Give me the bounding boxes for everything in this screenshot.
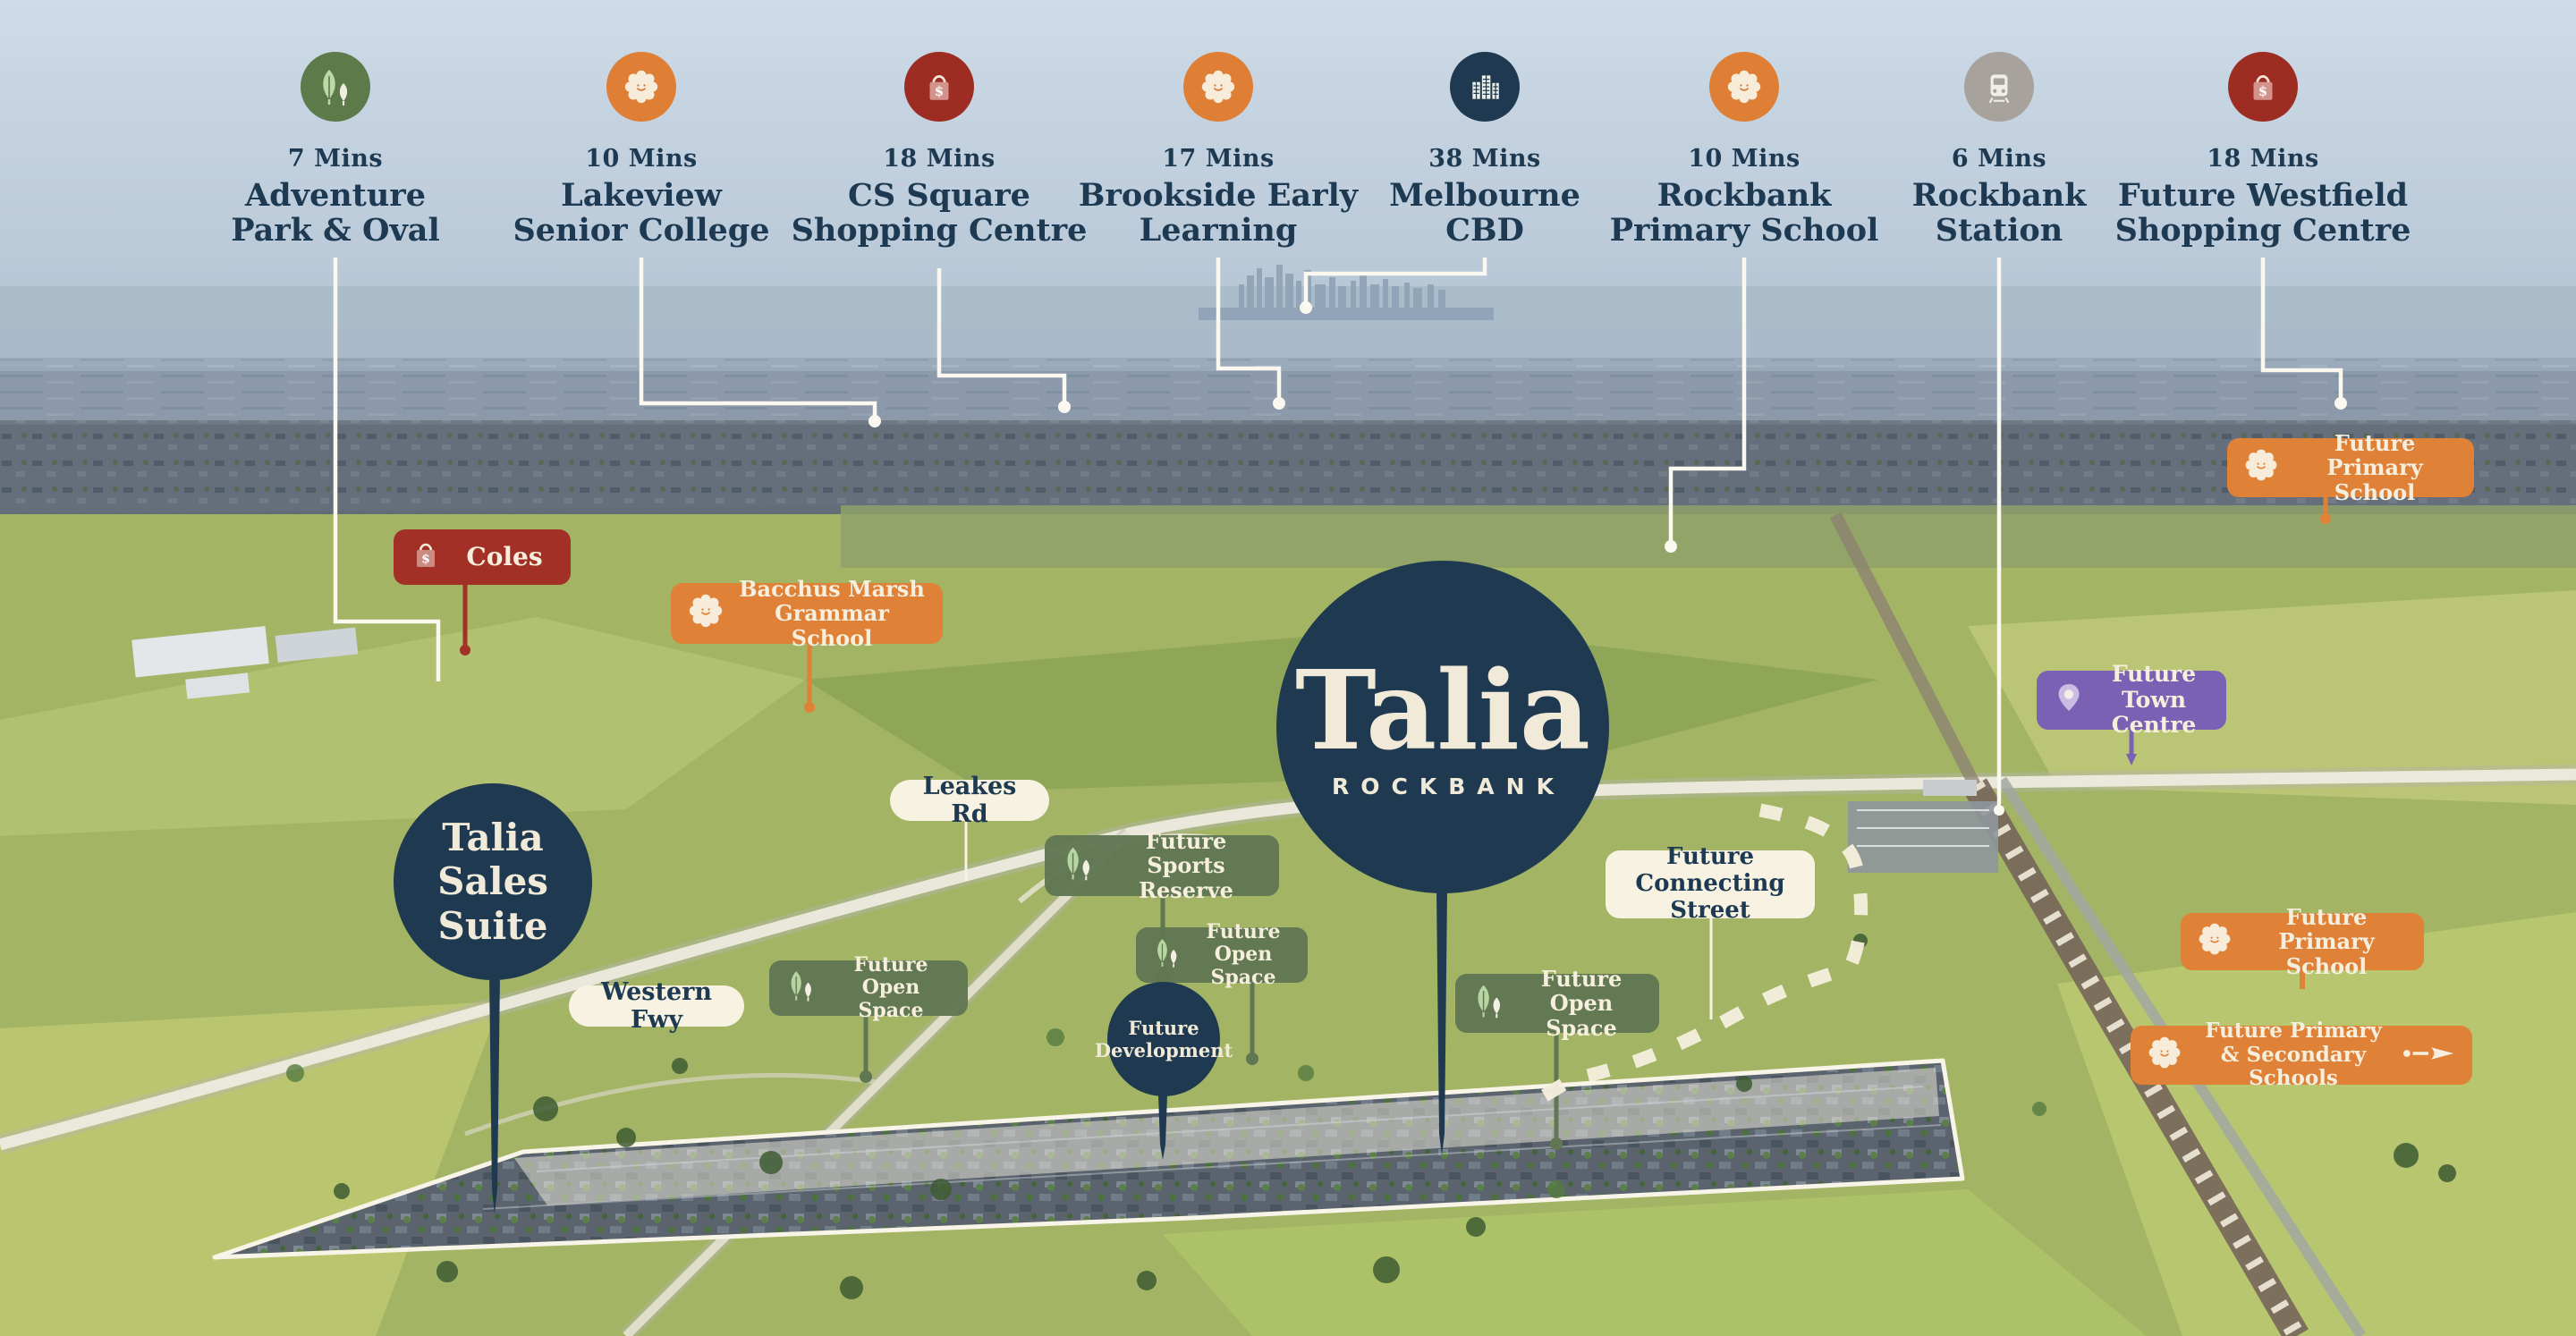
- badge-label: Future PrimarySchool: [2290, 431, 2460, 505]
- future-primary-school-badge: Future PrimarySchool: [2227, 438, 2474, 497]
- flower-icon: [606, 52, 676, 122]
- rockbank-subtitle: ROCKBANK: [1320, 774, 1565, 799]
- poi-name: AdventurePark & Oval: [165, 178, 505, 248]
- badge-label: FutureConnecting Street: [1620, 844, 1801, 925]
- city-buildings-icon: [1450, 52, 1520, 122]
- shopping-bag-icon: $: [2228, 52, 2298, 122]
- talia-rockbank-aerial-map: 7 Mins AdventurePark & Oval 10 Mins Lake…: [0, 0, 2576, 1336]
- badge-label: FutureTown Centre: [2096, 662, 2212, 739]
- svg-text:$: $: [935, 84, 944, 99]
- leaves-icon: [1150, 935, 1184, 975]
- western-fwy-badge: Western Fwy: [569, 985, 744, 1027]
- future-sports-reserve-badge: FutureSports Reserve: [1045, 835, 1279, 896]
- flower-icon: [1183, 52, 1253, 122]
- train-icon: [1964, 52, 2034, 122]
- poi-name: LakeviewSenior College: [471, 178, 811, 248]
- badge-label: Future Primary& Secondary Schools: [2193, 1019, 2394, 1090]
- svg-text:$: $: [2258, 84, 2267, 99]
- badge-label: Bacchus MarshGrammar School: [735, 577, 928, 651]
- future-primary-secondary-schools-badge: Future Primary& Secondary Schools: [2131, 1026, 2472, 1085]
- leaves-icon: [1059, 843, 1098, 888]
- future-open-space-badge: FutureOpen Space: [1136, 927, 1308, 983]
- poi-minutes: 18 Mins: [2093, 145, 2433, 173]
- badge-label: Future PrimarySchool: [2243, 905, 2410, 979]
- talia-sales-suite-marker: TaliaSales Suite: [394, 783, 592, 980]
- map-pin-icon: [2051, 680, 2087, 721]
- svg-text:$: $: [421, 552, 430, 566]
- badge-label: FutureOpen Space: [1193, 921, 1293, 989]
- talia-wordmark: Talia: [1295, 655, 1590, 765]
- sales-suite-label: TaliaSales Suite: [394, 816, 592, 949]
- flower-icon: [1709, 52, 1779, 122]
- leaves-icon: [784, 968, 819, 1009]
- leakes-rd-badge: Leakes Rd: [890, 780, 1049, 821]
- future-town-centre-badge: FutureTown Centre: [2037, 671, 2226, 730]
- poi-minutes: 10 Mins: [471, 145, 811, 173]
- flower-icon: [685, 590, 726, 637]
- badge-label: FutureSports Reserve: [1107, 829, 1265, 903]
- poi-adventure-park-oval: 7 Mins AdventurePark & Oval: [165, 52, 505, 248]
- flower-icon: [2241, 445, 2281, 490]
- badge-label: Leakes Rd: [904, 773, 1035, 828]
- badge-label: Western Fwy: [583, 978, 730, 1034]
- coles-label: Coles: [453, 543, 556, 571]
- badge-label: FutureOpen Space: [1518, 967, 1645, 1041]
- trees-icon: [301, 52, 370, 122]
- coles-badge: $ Coles: [394, 529, 571, 585]
- badge-label: FutureOpen Space: [828, 954, 953, 1022]
- poi-minutes: 7 Mins: [165, 145, 505, 173]
- future-connecting-street-badge: FutureConnecting Street: [1606, 850, 1815, 918]
- flower-icon: [2145, 1033, 2184, 1078]
- arrow-right-icon: [2402, 1044, 2458, 1068]
- shopping-bag-icon: $: [408, 537, 444, 579]
- talia-rockbank-logo: Talia ROCKBANK: [1276, 561, 1609, 893]
- shopping-bag-icon: $: [904, 52, 974, 122]
- poi-name: Future WestfieldShopping Centre: [2093, 178, 2433, 248]
- flower-icon: [2195, 919, 2234, 964]
- future-development-marker: FutureDevelopment: [1107, 982, 1220, 1096]
- leaves-icon: [1470, 981, 1509, 1026]
- poi-lakeview-senior-college: 10 Mins LakeviewSenior College: [471, 52, 811, 248]
- poi-future-westfield-shopping-centre: $ 18 Mins Future WestfieldShopping Centr…: [2093, 52, 2433, 248]
- future-primary-school-badge: Future PrimarySchool: [2181, 913, 2424, 970]
- future-open-space-badge: FutureOpen Space: [1455, 974, 1659, 1033]
- future-open-space-badge: FutureOpen Space: [769, 960, 968, 1016]
- future-development-label: FutureDevelopment: [1095, 1017, 1233, 1061]
- bacchus-marsh-grammar-badge: Bacchus MarshGrammar School: [671, 583, 943, 644]
